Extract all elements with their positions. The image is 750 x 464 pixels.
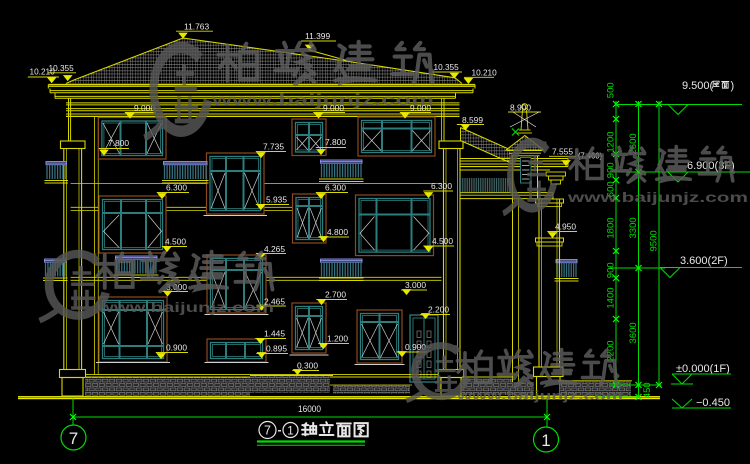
svg-text:1.445: 1.445 — [264, 329, 285, 339]
svg-text:10.210: 10.210 — [30, 67, 55, 77]
svg-text:9500: 9500 — [649, 230, 660, 251]
svg-text:7: 7 — [69, 429, 78, 448]
svg-text:7.735: 7.735 — [263, 142, 284, 152]
svg-text:-: - — [278, 423, 282, 437]
svg-text:450: 450 — [642, 382, 653, 398]
svg-text:3600: 3600 — [628, 322, 639, 343]
svg-text:2.700: 2.700 — [325, 290, 346, 300]
svg-text:1: 1 — [287, 426, 293, 438]
svg-text:7.555: 7.555 — [552, 147, 573, 157]
svg-text:2.200: 2.200 — [428, 305, 449, 315]
svg-text:7: 7 — [264, 424, 271, 438]
svg-text:8.900: 8.900 — [510, 103, 531, 113]
svg-text:3300: 3300 — [628, 217, 639, 238]
svg-text:1400: 1400 — [606, 287, 617, 308]
svg-text:1800: 1800 — [606, 217, 617, 238]
svg-text:0.300: 0.300 — [297, 361, 318, 371]
svg-text:7.800: 7.800 — [108, 138, 129, 148]
svg-text:±0.000(1F): ±0.000(1F) — [676, 363, 730, 375]
svg-text:0.895: 0.895 — [266, 344, 287, 354]
svg-text:1: 1 — [541, 431, 550, 450]
svg-text:3.000: 3.000 — [405, 280, 426, 290]
svg-text:7.800: 7.800 — [325, 137, 346, 147]
svg-text:11.763: 11.763 — [184, 22, 209, 32]
svg-text:4.500: 4.500 — [432, 236, 453, 246]
svg-text:8.599: 8.599 — [462, 115, 483, 125]
svg-text:): ) — [731, 80, 735, 92]
svg-text:1.200: 1.200 — [327, 334, 348, 344]
svg-text:6.300: 6.300 — [431, 181, 452, 191]
svg-text:4.500: 4.500 — [165, 237, 186, 247]
svg-text:500: 500 — [606, 82, 617, 98]
svg-text:6.300: 6.300 — [325, 183, 346, 193]
svg-text:10.210: 10.210 — [472, 67, 497, 77]
svg-text:16000: 16000 — [298, 404, 321, 414]
svg-text:5.935: 5.935 — [266, 195, 287, 205]
svg-text:1200: 1200 — [606, 131, 617, 152]
svg-text:10.355: 10.355 — [434, 62, 459, 72]
svg-text:4.800: 4.800 — [327, 227, 348, 237]
svg-text:3.600(2F): 3.600(2F) — [680, 255, 728, 267]
svg-text:4.265: 4.265 — [264, 244, 285, 254]
svg-text:6.300: 6.300 — [166, 183, 187, 193]
svg-text:www.baijunjz.com: www.baijunjz.com — [96, 300, 274, 315]
svg-text:11.399: 11.399 — [305, 31, 330, 41]
svg-text:www.baijunjz.com: www.baijunjz.com — [456, 388, 623, 403]
svg-text:0.900: 0.900 — [166, 343, 187, 353]
svg-text:−0.450: −0.450 — [696, 397, 730, 409]
svg-text:900: 900 — [606, 262, 617, 278]
svg-text:www.baijunjz.com: www.baijunjz.com — [566, 190, 748, 205]
svg-text:4.950: 4.950 — [555, 222, 576, 232]
svg-text:www.baijunjz.com: www.baijunjz.com — [210, 92, 434, 109]
svg-text:9.500(: 9.500( — [682, 80, 714, 92]
